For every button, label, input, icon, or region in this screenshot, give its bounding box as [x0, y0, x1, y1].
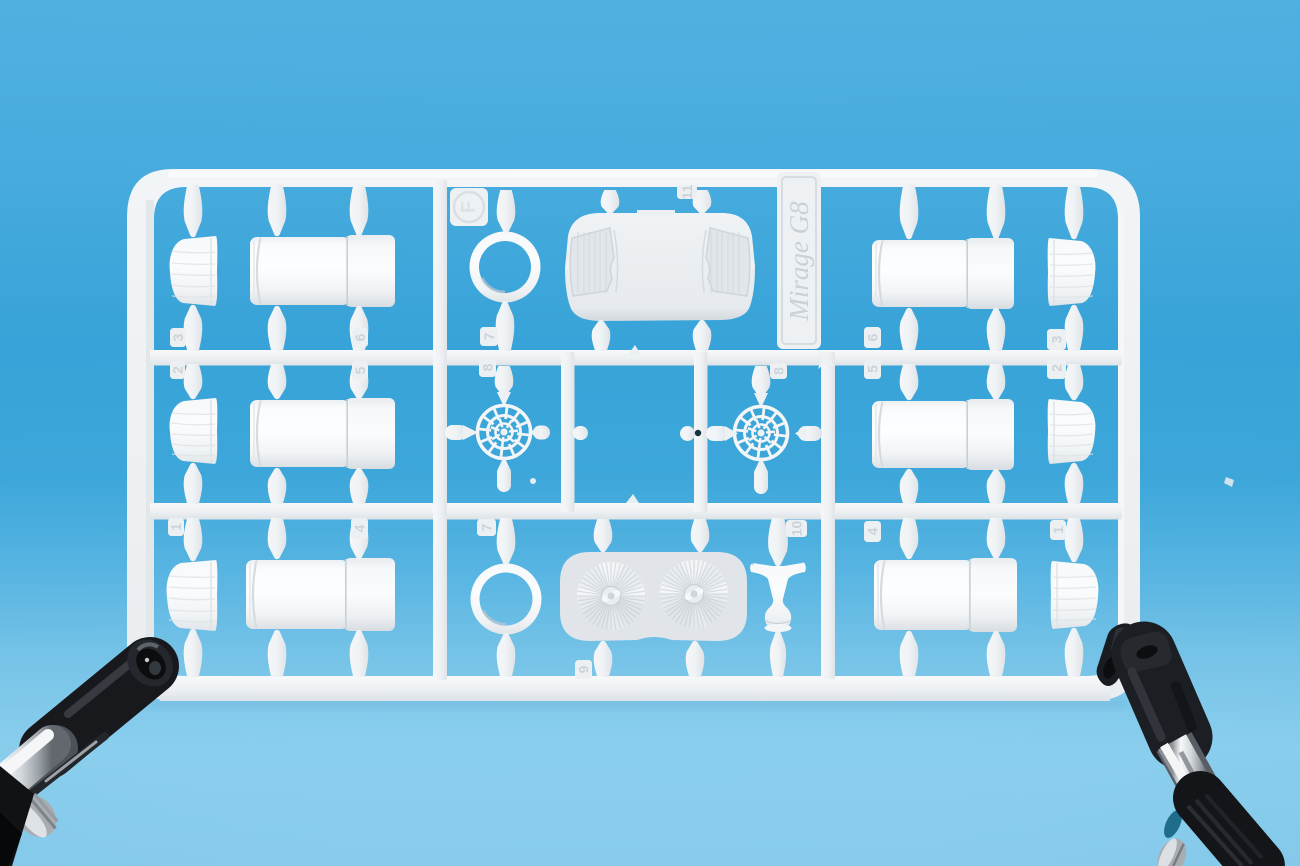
svg-text:6: 6 — [865, 333, 881, 341]
svg-text:8: 8 — [480, 363, 496, 371]
svg-text:1: 1 — [168, 523, 184, 531]
svg-text:F: F — [458, 201, 480, 213]
svg-text:11: 11 — [679, 184, 695, 199]
svg-text:6: 6 — [352, 333, 368, 341]
svg-text:10: 10 — [789, 521, 805, 537]
svg-text:4: 4 — [352, 524, 368, 532]
svg-text:8: 8 — [771, 367, 787, 375]
svg-text:2: 2 — [170, 366, 186, 374]
svg-text:2: 2 — [1049, 364, 1065, 372]
svg-text:Mirage G8: Mirage G8 — [784, 201, 814, 322]
svg-text:7: 7 — [481, 332, 497, 340]
svg-text:7: 7 — [479, 523, 495, 531]
svg-text:9: 9 — [576, 665, 592, 673]
svg-text:3: 3 — [170, 333, 186, 341]
svg-text:3: 3 — [1049, 335, 1065, 343]
svg-text:5: 5 — [865, 365, 881, 373]
svg-text:5: 5 — [352, 366, 368, 374]
svg-text:1: 1 — [1050, 526, 1066, 534]
svg-text:4: 4 — [865, 527, 881, 535]
